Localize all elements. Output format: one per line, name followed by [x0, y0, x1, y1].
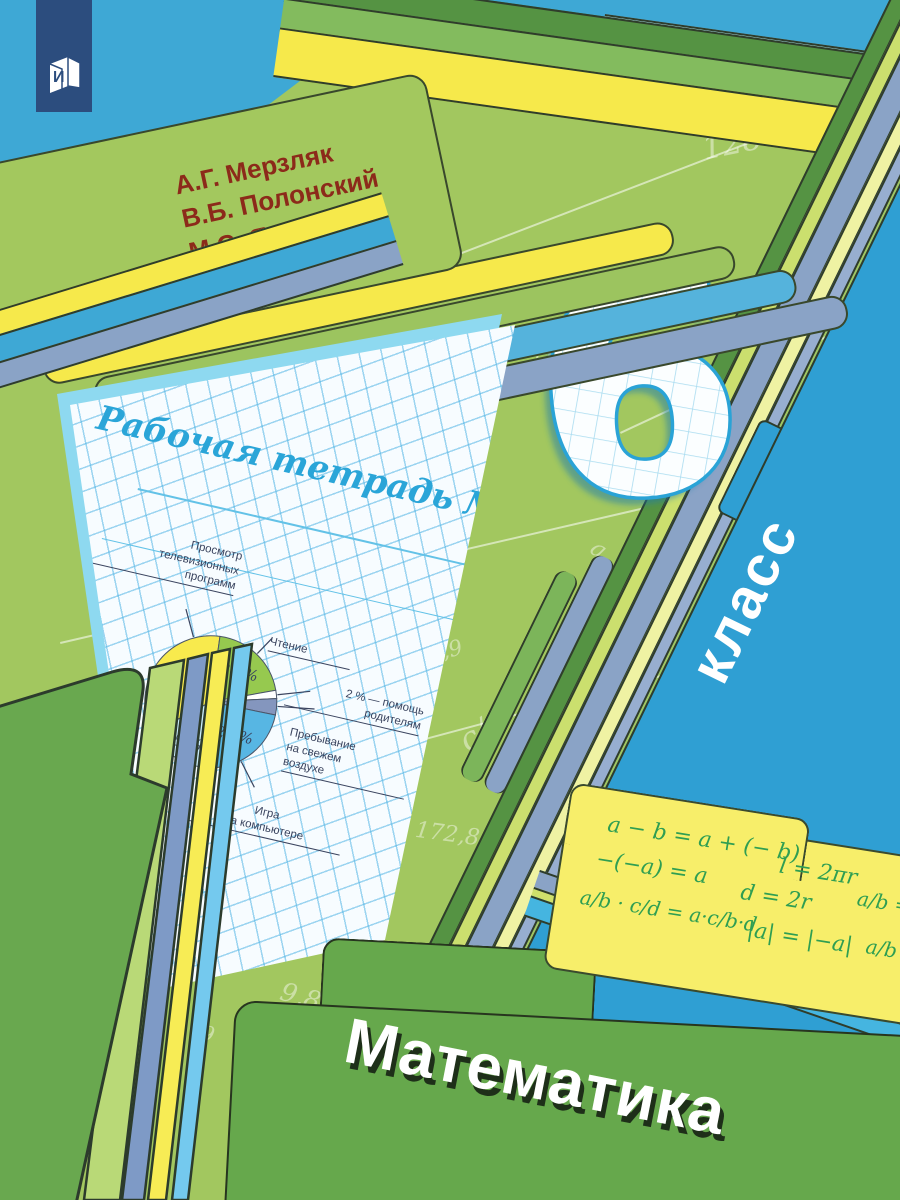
publisher-logo: И — [36, 0, 92, 112]
book-cover: ambSqc/d749523167,863,759801281757854515… — [0, 0, 900, 1200]
notebook-title: Рабочая тетрадь № 2 — [93, 398, 540, 538]
svg-text:И: И — [53, 69, 65, 86]
background-glyph: 5 — [197, 86, 223, 115]
publisher-logo-icon: И — [42, 52, 86, 96]
